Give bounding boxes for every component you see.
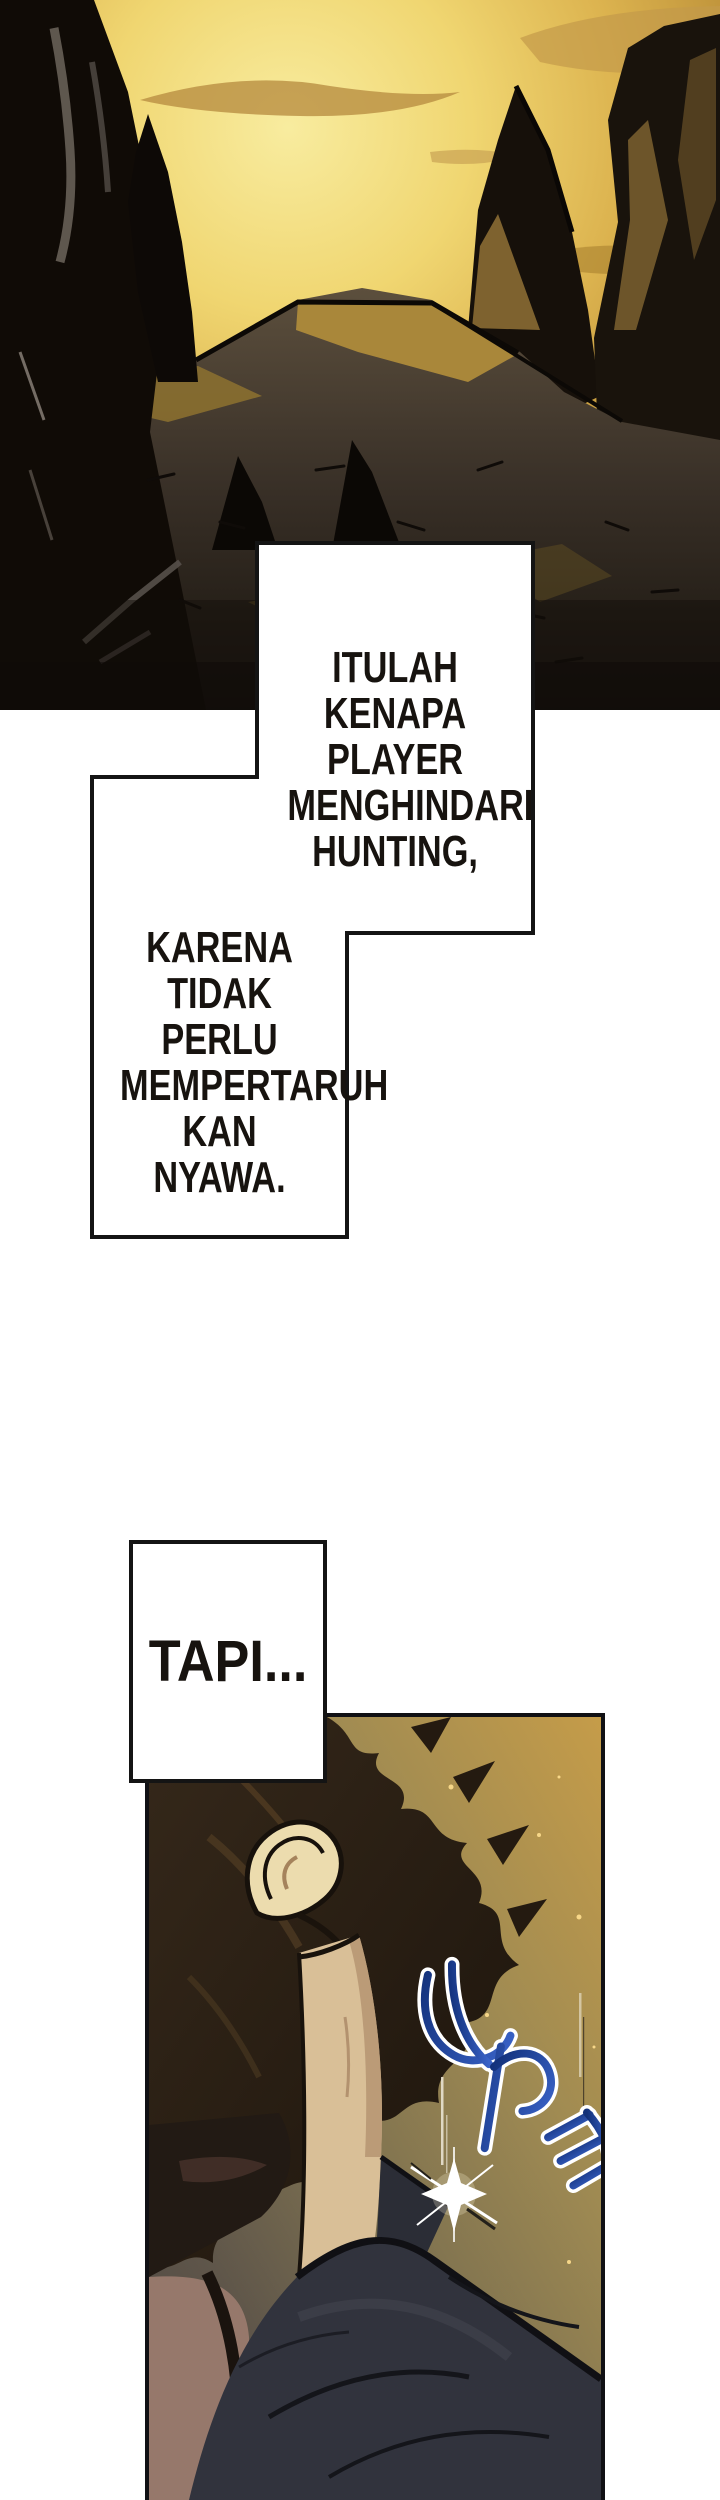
speech-line: KENAPA PLAYER bbox=[287, 691, 502, 783]
speech-line: MENGHINDARI bbox=[287, 783, 502, 829]
speech-line: KARENA bbox=[120, 925, 319, 971]
caption-label: TAPI... bbox=[149, 1628, 308, 1695]
speech-text-2: KARENA TIDAK PERLU MEMPERTARUH KAN NYAWA… bbox=[92, 925, 347, 1201]
speech-line: HUNTING, bbox=[287, 829, 502, 875]
speech-line: ITULAH bbox=[287, 645, 502, 691]
character-panel bbox=[145, 1713, 605, 2500]
caption-box: TAPI... bbox=[129, 1540, 327, 1783]
comic-page: ITULAH KENAPA PLAYER MENGHINDARI HUNTING… bbox=[0, 0, 720, 2500]
character-art bbox=[149, 1717, 601, 2500]
speech-text-1: ITULAH KENAPA PLAYER MENGHINDARI HUNTING… bbox=[257, 645, 533, 875]
speech-line: TIDAK PERLU bbox=[120, 971, 319, 1063]
character-neck bbox=[299, 1935, 382, 2277]
speech-line: KAN NYAWA. bbox=[120, 1109, 319, 1201]
speech-line: MEMPERTARUH bbox=[120, 1063, 319, 1109]
